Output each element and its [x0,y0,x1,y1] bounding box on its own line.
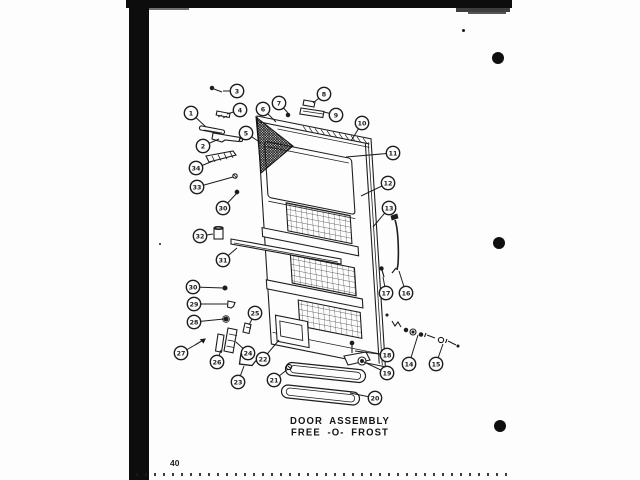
callout-number-19: 19 [383,370,392,377]
callout-number-20: 20 [371,395,380,402]
callout-number-26: 26 [213,359,222,366]
callout-number-30: 30 [189,284,198,291]
callout-number-23: 23 [234,379,243,386]
clip-part-8 [303,100,315,107]
plate-part-9 [300,108,324,118]
caption-subtitle: FREE -O- FROST [240,427,440,439]
clip-part-29 [228,301,236,308]
callout-number-25: 25 [251,310,260,317]
latch-hardware-row [386,314,459,347]
punch-hole [492,52,504,64]
callout-number-6: 6 [261,106,266,113]
page-number: 40 [170,458,179,468]
diagram-caption: DOOR ASSEMBLY FREE -O- FROST [240,415,440,439]
callout-number-29: 29 [190,301,199,308]
hinge-pin [380,267,384,277]
exploded-door-diagram: 3142343330323130292825272624232221201918… [0,0,640,480]
callout-number-7: 7 [277,100,281,107]
grommet-part-28 [224,317,228,321]
callout-number-15: 15 [432,361,441,368]
callout-number-32: 32 [196,233,205,240]
callout-number-18: 18 [383,352,392,359]
callout-number-30: 30 [219,205,228,212]
callout-number-5: 5 [244,130,248,137]
punch-hole [494,420,506,432]
callout-number-34: 34 [192,165,201,172]
screw-part [210,86,213,89]
punch-hole [493,237,505,249]
callout-number-22: 22 [259,356,268,363]
callout-number-21: 21 [270,377,279,384]
callout-number-4: 4 [238,107,243,114]
callout-number-1: 1 [189,110,193,117]
callout-number-16: 16 [402,290,411,297]
callout-number-3: 3 [235,88,239,95]
callout-number-31: 31 [219,257,228,264]
callout-number-28: 28 [190,319,199,326]
callout-number-11: 11 [389,150,398,157]
caption-title: DOOR ASSEMBLY [240,415,440,427]
door-gasket [282,363,366,406]
callout-number-13: 13 [385,205,394,212]
callout-number-24: 24 [244,350,253,357]
callout-number-17: 17 [382,290,391,297]
callout-number-2: 2 [201,143,205,150]
callout-number-14: 14 [405,361,414,368]
callout-number-33: 33 [193,184,202,191]
screw-part-7 [286,113,289,116]
callout-number-27: 27 [177,350,186,357]
hinge-rod [391,214,398,273]
bar-part-26 [216,334,225,352]
callout-number-9: 9 [334,112,338,119]
callout-number-12: 12 [384,180,393,187]
callout-number-8: 8 [322,91,326,98]
scanned-manual-page: 3142343330323130292825272624232221201918… [0,0,640,480]
callout-number-10: 10 [358,120,367,127]
